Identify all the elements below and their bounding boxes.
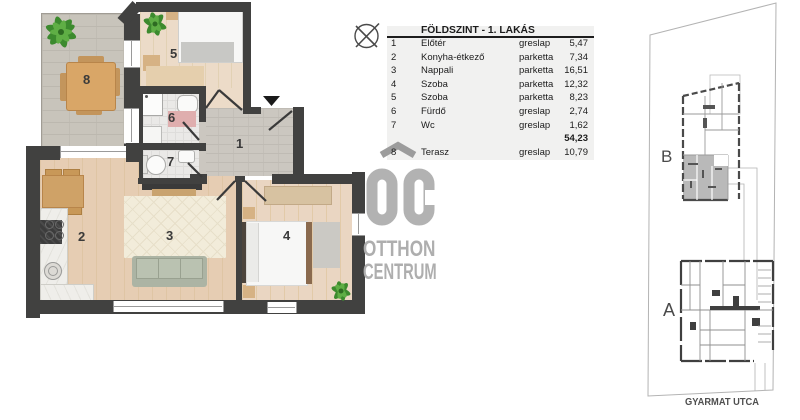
svg-text:A: A	[663, 300, 675, 320]
svg-text:B: B	[661, 147, 672, 166]
svg-text:GYARMAT UTCA: GYARMAT UTCA	[685, 396, 759, 408]
